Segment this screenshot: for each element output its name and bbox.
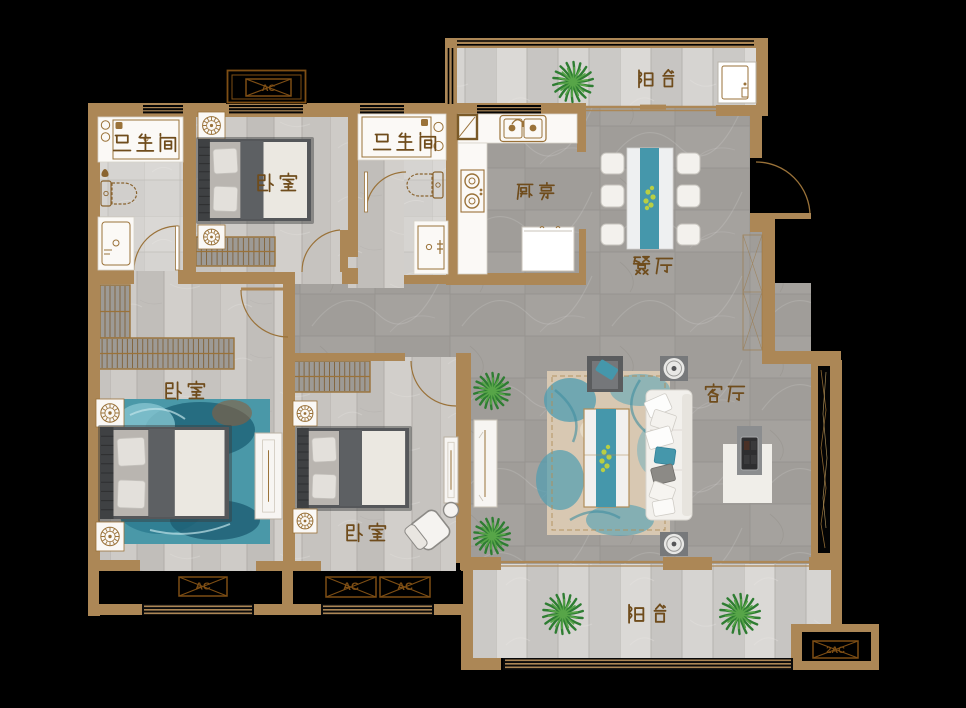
svg-text:AC: AC xyxy=(262,82,276,93)
svg-text:AC: AC xyxy=(343,581,359,593)
svg-text:AC: AC xyxy=(195,581,211,593)
svg-text:AC: AC xyxy=(397,581,413,593)
svg-text:2AC: 2AC xyxy=(826,644,845,655)
